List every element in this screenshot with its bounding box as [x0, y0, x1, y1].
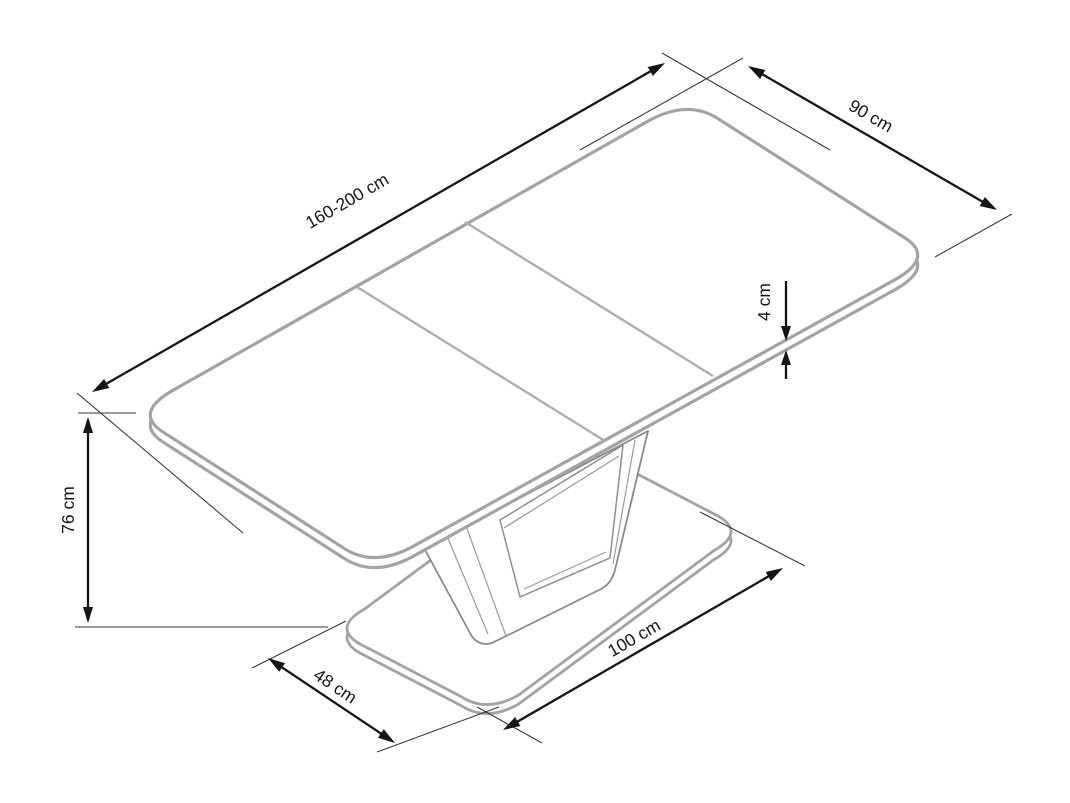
arrowhead-length-right: [648, 63, 665, 76]
arrowhead-length-left: [92, 379, 109, 392]
width-label: 90 cm: [845, 95, 896, 136]
height-label: 76 cm: [58, 486, 78, 534]
arrowhead-base-length-right: [766, 568, 783, 581]
arrowhead-base-width-left: [268, 658, 285, 672]
arrowhead-base-width-right: [378, 729, 395, 743]
arrowhead-width-right: [980, 197, 997, 210]
table-dimension-diagram: 160-200 cm 90 cm 4 cm 76 cm 48 cm 100 cm: [0, 0, 1070, 803]
arrowhead-height-bottom: [83, 607, 93, 623]
dimension-base-width: 48 cm: [268, 658, 395, 743]
thickness-label: 4 cm: [754, 283, 774, 321]
dimension-height: 76 cm: [58, 417, 93, 623]
ext-line-base-bottom-corner-a: [377, 707, 499, 752]
ext-line-base-left-corner: [252, 621, 346, 668]
arrowhead-height-top: [83, 417, 93, 433]
arrowhead-width-left: [748, 66, 765, 79]
base-width-label: 48 cm: [310, 664, 361, 707]
ext-line-right-corner: [935, 214, 1012, 257]
length-label: 160-200 cm: [302, 169, 392, 233]
arrowhead-base-length-left: [503, 717, 520, 730]
diagram-svg: 160-200 cm 90 cm 4 cm 76 cm 48 cm 100 cm: [0, 0, 1070, 803]
